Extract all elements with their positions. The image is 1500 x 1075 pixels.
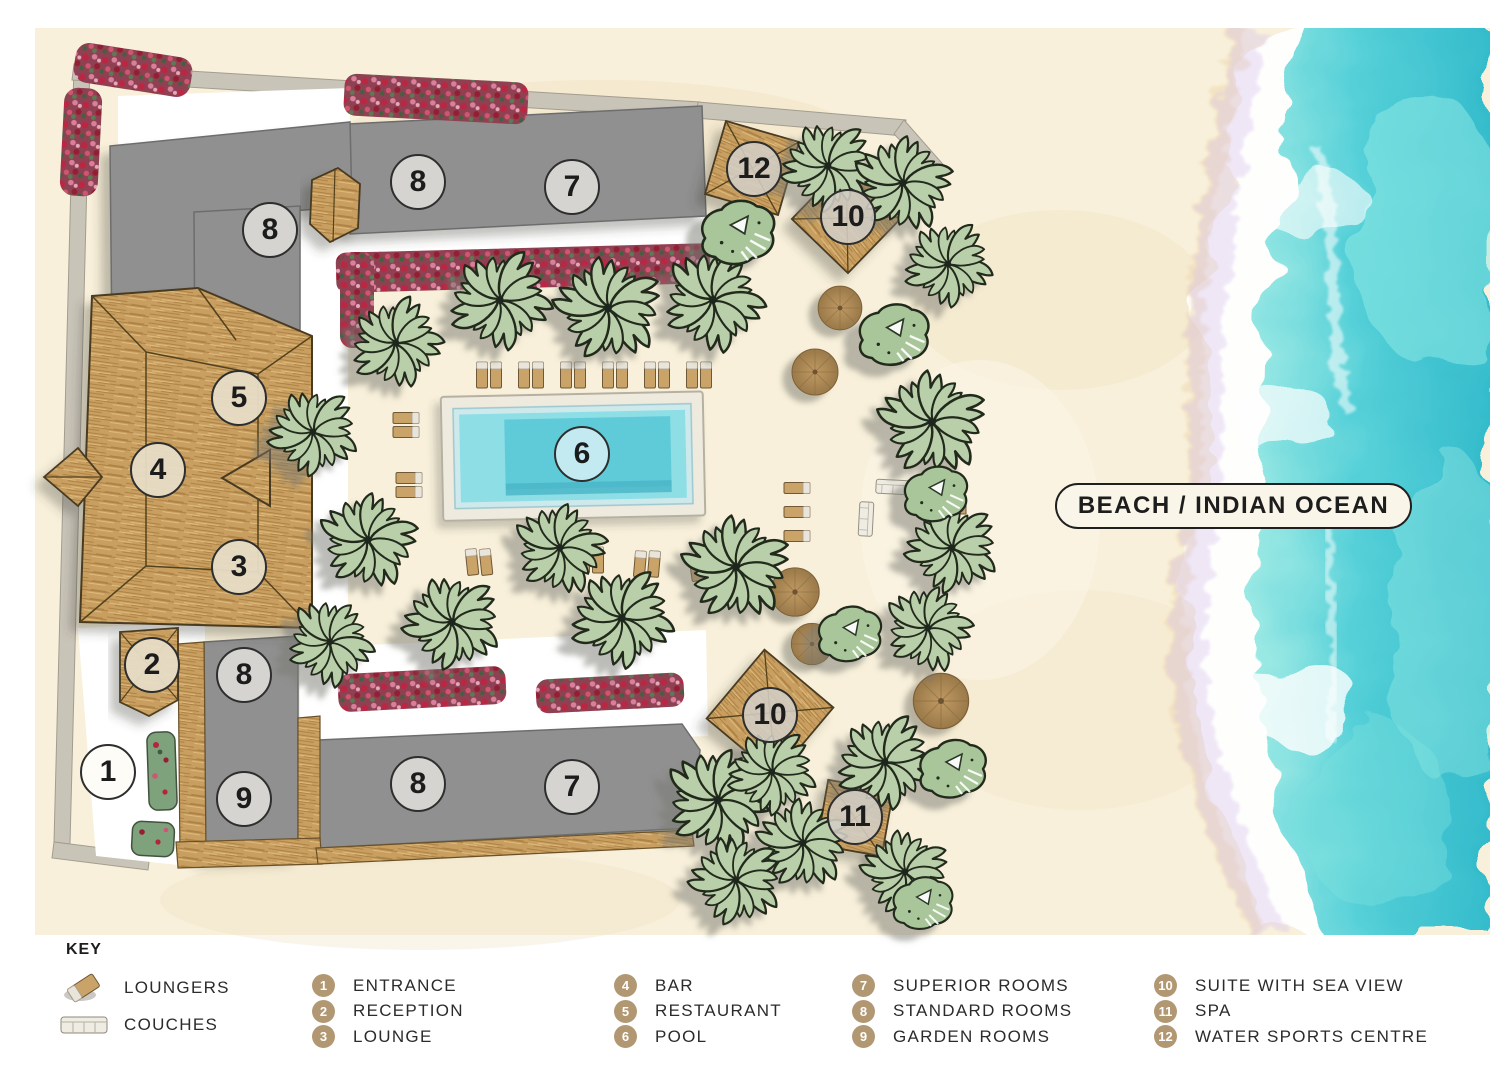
key-item-7: 7SUPERIOR ROOMS xyxy=(852,973,1072,999)
key-item-number: 10 xyxy=(1154,974,1177,997)
key-title: KEY xyxy=(66,941,102,959)
resort-map-page: 887121054362819871011 BEACH / INDIAN OCE… xyxy=(0,0,1500,1075)
key-item-number: 3 xyxy=(312,1025,335,1048)
key-symbol-loungers: LOUNGERS xyxy=(58,971,230,1005)
couch-icon xyxy=(58,1012,110,1038)
key-item-5: 5RESTAURANT xyxy=(614,999,782,1025)
map-marker-8: 8 xyxy=(242,202,298,258)
key-item-8: 8STANDARD ROOMS xyxy=(852,999,1072,1025)
map-marker-11: 11 xyxy=(827,789,883,845)
key-item-10: 10SUITE WITH SEA VIEW xyxy=(1154,973,1428,999)
key-item-label: POOL xyxy=(655,1027,707,1047)
map-marker-5: 5 xyxy=(211,370,267,426)
key-item-9: 9GARDEN ROOMS xyxy=(852,1024,1072,1050)
key-item-label: SPA xyxy=(1195,1001,1232,1021)
key-item-label: STANDARD ROOMS xyxy=(893,1001,1072,1021)
key-item-number: 8 xyxy=(852,1000,875,1023)
key-item-label: RECEPTION xyxy=(353,1001,464,1021)
key-item-number: 6 xyxy=(614,1025,637,1048)
key-symbol-label: LOUNGERS xyxy=(124,978,230,998)
map-marker-10: 10 xyxy=(742,687,798,743)
key-item-number: 12 xyxy=(1154,1025,1177,1048)
key-item-11: 11SPA xyxy=(1154,999,1428,1025)
key-item-2: 2RECEPTION xyxy=(312,999,464,1025)
key-item-number: 5 xyxy=(614,1000,637,1023)
key-item-3: 3LOUNGE xyxy=(312,1024,464,1050)
map-marker-4: 4 xyxy=(130,442,186,498)
key-item-12: 12WATER SPORTS CENTRE xyxy=(1154,1024,1428,1050)
lounger-icon xyxy=(58,971,110,1005)
map-marker-8: 8 xyxy=(216,647,272,703)
key-item-number: 1 xyxy=(312,974,335,997)
key-item-number: 4 xyxy=(614,974,637,997)
key-item-label: BAR xyxy=(655,976,694,996)
map-marker-8: 8 xyxy=(390,154,446,210)
key-item-6: 6POOL xyxy=(614,1024,782,1050)
key-item-label: RESTAURANT xyxy=(655,1001,782,1021)
map-marker-2: 2 xyxy=(124,637,180,693)
map-marker-9: 9 xyxy=(216,771,272,827)
map-marker-6: 6 xyxy=(554,426,610,482)
key-symbol-label: COUCHES xyxy=(124,1015,218,1035)
key-item-number: 7 xyxy=(852,974,875,997)
key-item-1: 1ENTRANCE xyxy=(312,973,464,999)
key-column-3: 7SUPERIOR ROOMS8STANDARD ROOMS9GARDEN RO… xyxy=(852,973,1072,1050)
map-marker-3: 3 xyxy=(211,539,267,595)
map-marker-10: 10 xyxy=(820,189,876,245)
map-marker-12: 12 xyxy=(726,141,782,197)
key-item-number: 2 xyxy=(312,1000,335,1023)
key-symbol-couches: COUCHES xyxy=(58,1008,218,1042)
key-column-4: 10SUITE WITH SEA VIEW11SPA12WATER SPORTS… xyxy=(1154,973,1428,1050)
key-column-1: 1ENTRANCE2RECEPTION3LOUNGE xyxy=(312,973,464,1050)
map-marker-1: 1 xyxy=(80,744,136,800)
key-item-label: ENTRANCE xyxy=(353,976,457,996)
map-marker-7: 7 xyxy=(544,159,600,215)
key-item-label: LOUNGE xyxy=(353,1027,433,1047)
key-item-number: 11 xyxy=(1154,1000,1177,1023)
beach-label: BEACH / INDIAN OCEAN xyxy=(1055,483,1412,529)
key-item-4: 4BAR xyxy=(614,973,782,999)
key-item-label: WATER SPORTS CENTRE xyxy=(1195,1027,1428,1047)
key-item-number: 9 xyxy=(852,1025,875,1048)
map-markers: 887121054362819871011 xyxy=(0,0,1500,935)
key-item-label: GARDEN ROOMS xyxy=(893,1027,1050,1047)
key-item-label: SUITE WITH SEA VIEW xyxy=(1195,976,1404,996)
key-item-label: SUPERIOR ROOMS xyxy=(893,976,1069,996)
key-column-2: 4BAR5RESTAURANT6POOL xyxy=(614,973,782,1050)
map-marker-8: 8 xyxy=(390,756,446,812)
map-marker-7: 7 xyxy=(544,759,600,815)
